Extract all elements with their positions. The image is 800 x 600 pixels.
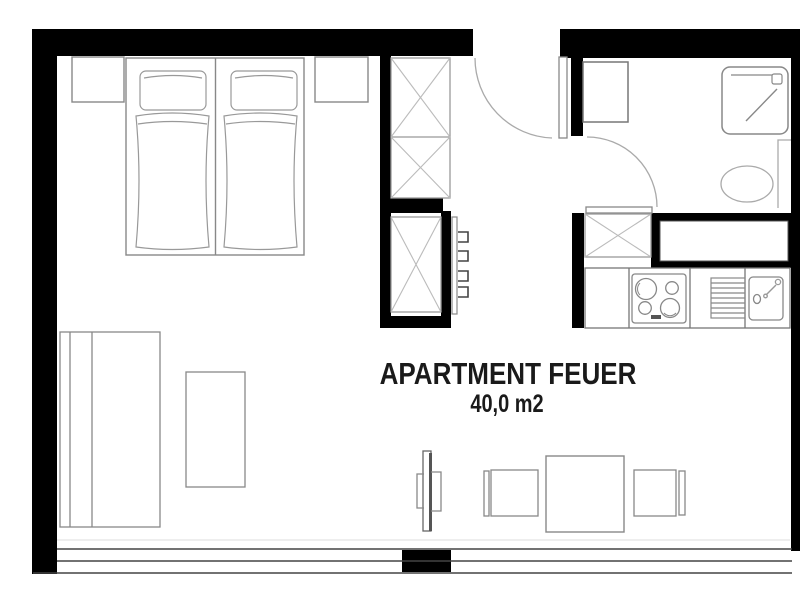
svg-text:APARTMENT FEUER: APARTMENT FEUER <box>380 357 637 392</box>
svg-text:40,0 m2: 40,0 m2 <box>470 390 543 418</box>
